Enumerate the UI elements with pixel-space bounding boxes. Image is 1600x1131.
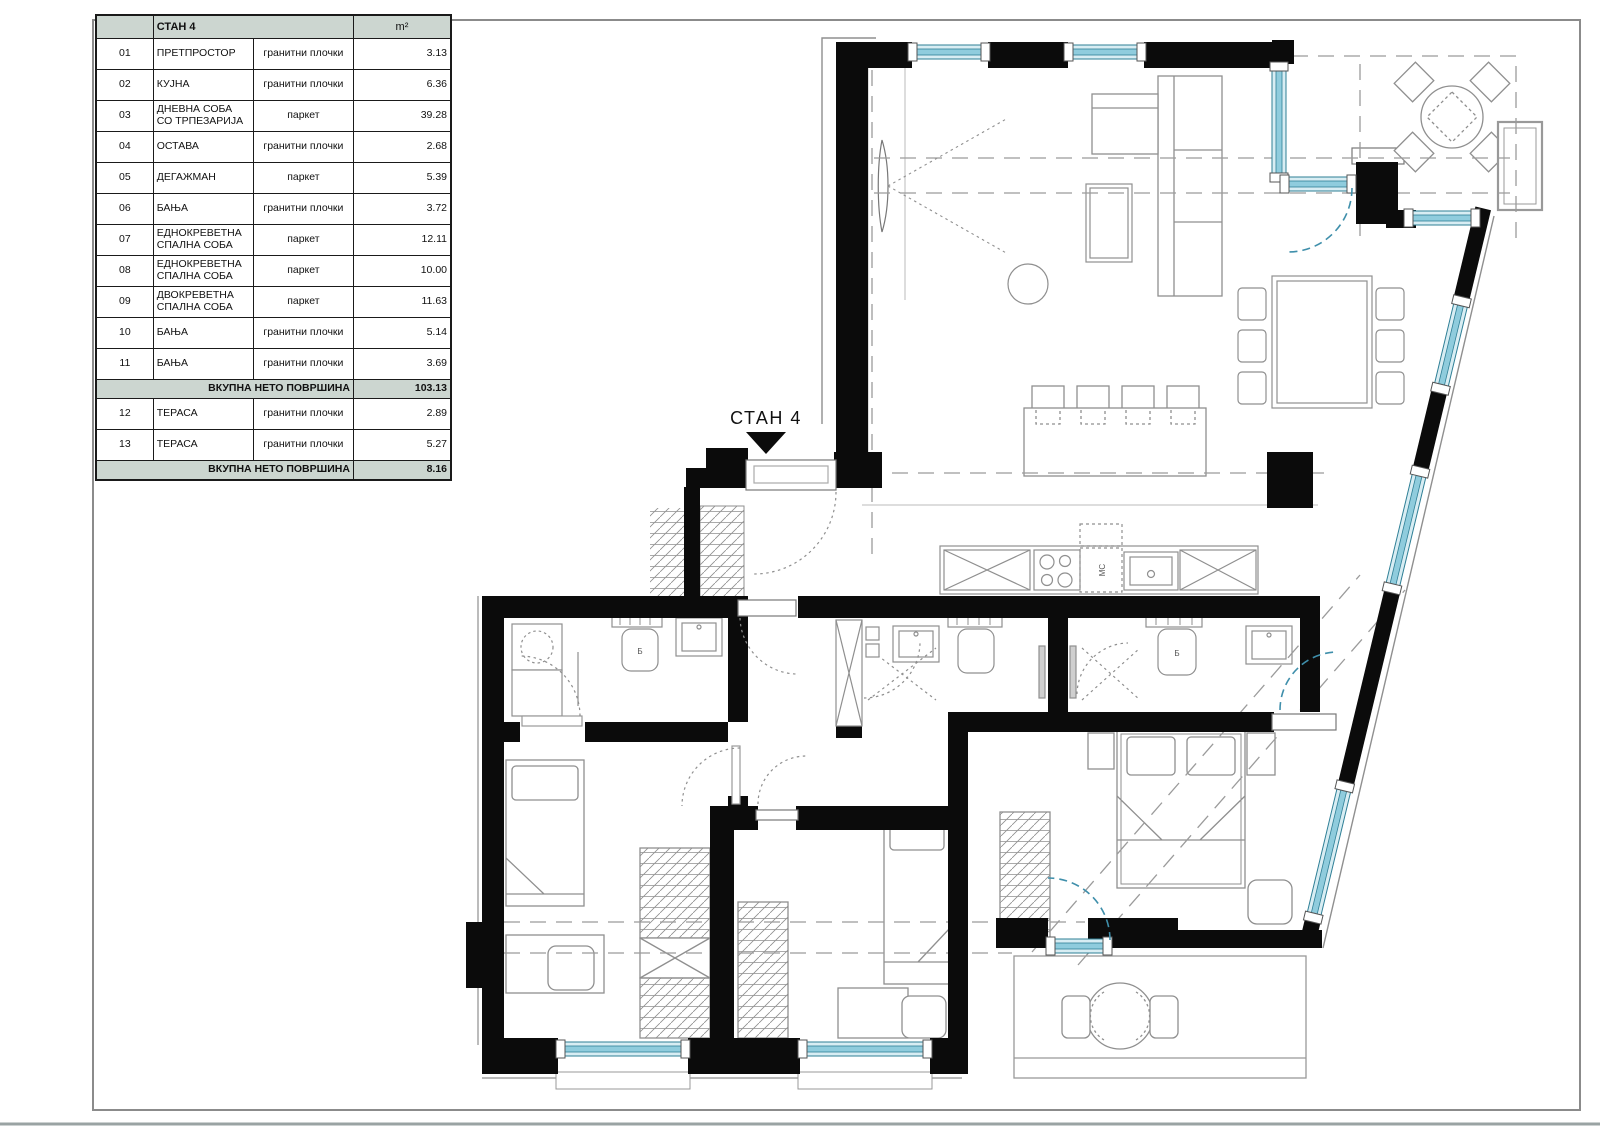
table-row: 03ДНЕВНА СОБА СО ТРПЕЗАРИЈАпаркет39.28 (96, 101, 451, 132)
table-row: 11БАЊАгранитни плочки3.69 (96, 349, 451, 380)
table-row: 13ТЕРАСАгранитни плочки5.27 (96, 430, 451, 461)
table-row: 12ТЕРАСАгранитни плочки2.89 (96, 399, 451, 430)
bathroom-right (1070, 616, 1292, 700)
dining-table (1238, 276, 1404, 408)
bathroom-mid (866, 616, 1045, 700)
table-row: 06БАЊАгранитни плочки3.72 (96, 194, 451, 225)
kitchen-sink-label: МС (1098, 564, 1107, 577)
toilet-label: Б (1174, 649, 1179, 658)
table-row: 04ОСТАВАгранитни плочки2.68 (96, 132, 451, 163)
window-icon (1046, 937, 1112, 955)
table-row: 01ПРЕТПРОСТОРгранитни плочки3.13 (96, 39, 451, 70)
window-icon (1064, 43, 1146, 61)
kitchen-island (1024, 386, 1206, 476)
window-icon (1280, 175, 1356, 193)
table-title: СТАН 4 (153, 15, 353, 39)
pouf (1008, 264, 1048, 304)
floor-plan-sheet: СТАН 4 Б Б МС СТАН 4 m² 01ПРЕТПРОСТОРгра… (0, 0, 1600, 1131)
entry-arrow-icon (746, 432, 786, 454)
window-icon (1270, 62, 1288, 182)
window-icon (1404, 209, 1480, 227)
door-arcs (520, 492, 1128, 806)
window-icon (1431, 295, 1472, 395)
built-in-wardrobe (836, 620, 862, 726)
total-row: ВКУПНА НЕТО ПОВРШИНА8.16 (96, 461, 451, 481)
coffee-table (1086, 184, 1132, 262)
table-header-row: СТАН 4 m² (96, 15, 451, 39)
bedroom-right (1000, 730, 1292, 938)
window-icon (908, 43, 990, 61)
window-icon (556, 1040, 690, 1058)
apartment-label: СТАН 4 (730, 408, 802, 428)
bedroom-left (506, 760, 710, 1038)
area-unit: m² (353, 15, 451, 39)
bedroom-mid (738, 812, 950, 1038)
area-table: СТАН 4 m² 01ПРЕТПРОСТОРгранитни плочки3.… (95, 14, 452, 481)
toilet-label: Б (637, 647, 642, 656)
window-icon (798, 1040, 932, 1058)
table-row: 07ЕДНОКРЕВЕТНА СПАЛНА СОБАпаркет12.11 (96, 225, 451, 256)
table-row: 02КУЈНАгранитни плочки6.36 (96, 70, 451, 101)
table-row: 05ДЕГАЖМАНпаркет5.39 (96, 163, 451, 194)
kitchen-counter (940, 524, 1258, 594)
table-row: 10БАЊАгранитни плочки5.14 (96, 318, 451, 349)
closet-hatched (700, 506, 744, 598)
window-icon (1303, 780, 1354, 924)
tv-icon (878, 118, 1008, 254)
terrace-top (1394, 62, 1542, 210)
table-row: 08ЕДНОКРЕВЕТНА СПАЛНА СОБАпаркет10.00 (96, 256, 451, 287)
terrace-bottom (1014, 956, 1306, 1078)
subtotal-row: ВКУПНА НЕТО ПОВРШИНА103.13 (96, 380, 451, 399)
stairwell-hatch (650, 508, 684, 598)
table-row: 09ДВОКРЕВЕТНА СПАЛНА СОБАпаркет11.63 (96, 287, 451, 318)
window-icon (1382, 465, 1430, 595)
